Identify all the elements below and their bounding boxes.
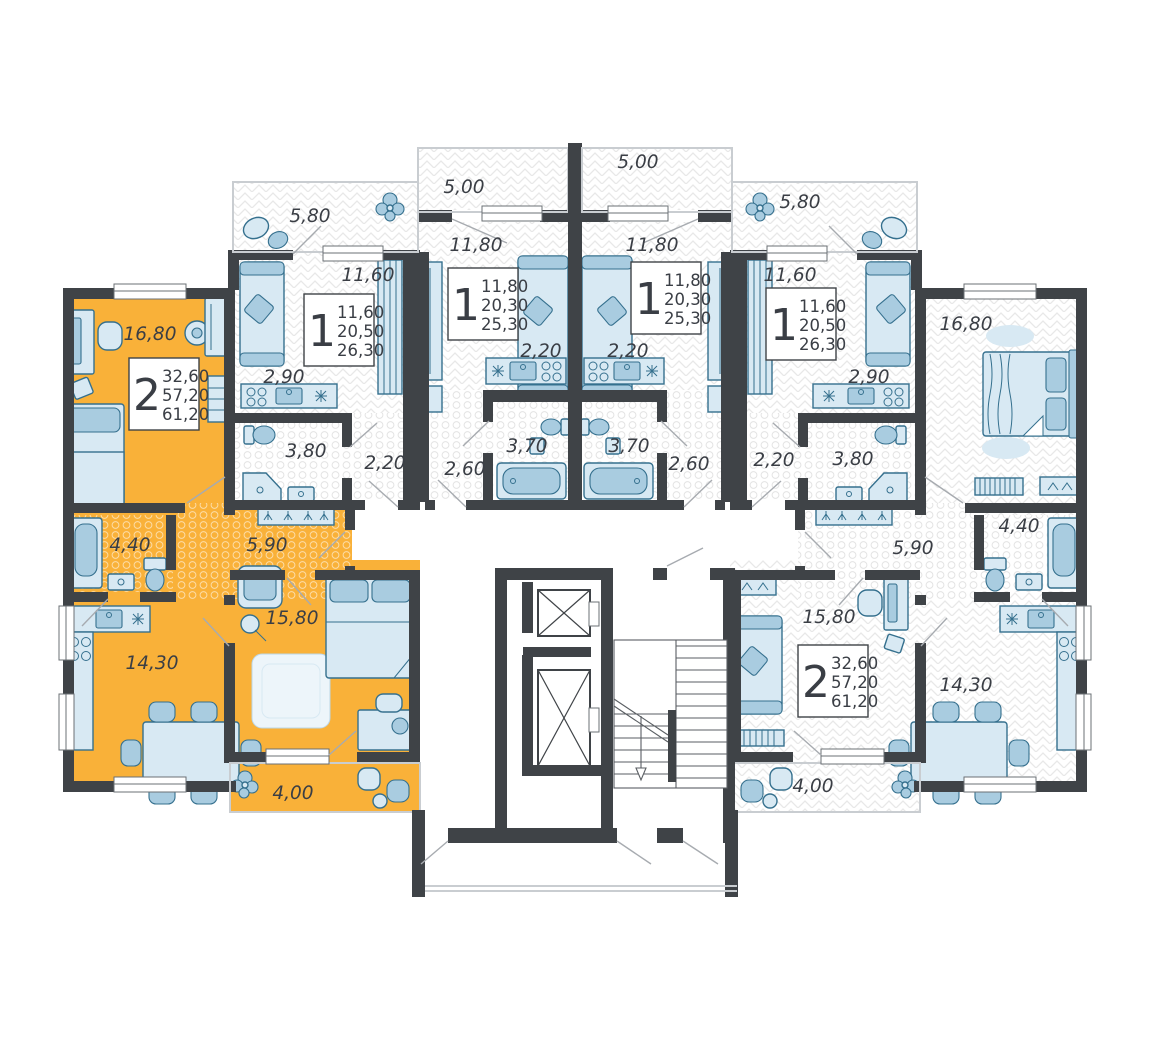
chair xyxy=(376,694,402,712)
rug xyxy=(986,325,1034,347)
monitor xyxy=(888,584,897,622)
room-area-label: 4,40 xyxy=(998,516,1039,537)
unit-area-main: 20,50 xyxy=(799,316,846,335)
room-area-label: 3,80 xyxy=(832,449,873,470)
room-area-label: 3,70 xyxy=(608,436,649,457)
room-area-label: 2,90 xyxy=(848,367,889,388)
stove-symbol xyxy=(132,613,144,625)
unit-area-living: 11,80 xyxy=(481,277,528,296)
stove-symbol xyxy=(492,365,504,377)
bookshelf xyxy=(738,730,784,746)
balcony-chair xyxy=(387,780,409,802)
rug xyxy=(982,437,1030,459)
bathtub-inner xyxy=(503,468,560,494)
room-area-label: 5,90 xyxy=(892,538,933,559)
elevator-shaft-2 xyxy=(538,670,599,766)
room-area-label: 2,90 xyxy=(263,367,304,388)
room-area-label: 15,80 xyxy=(803,607,856,628)
room-area-label: 2,60 xyxy=(668,454,709,475)
unit-area-living: 11,60 xyxy=(799,297,846,316)
unit-area-main: 57,20 xyxy=(831,673,878,692)
round-table-top xyxy=(192,328,202,338)
toilet-tank xyxy=(144,558,166,570)
unit-rooms-count: 2 xyxy=(802,657,830,708)
room-area-label: 2,20 xyxy=(607,341,648,362)
dining-chair xyxy=(121,740,141,766)
unit-area-living: 32,60 xyxy=(831,654,878,673)
room-area-label: 3,70 xyxy=(506,436,547,457)
pillow xyxy=(68,408,120,432)
dining-chair xyxy=(191,702,217,722)
unit-area-main: 20,30 xyxy=(664,290,711,309)
chair xyxy=(98,322,122,350)
room-area-label: 5,00 xyxy=(617,152,658,173)
rug xyxy=(252,654,330,728)
unit-card-2-right[interactable]: 2 32,60 57,20 61,20 xyxy=(798,645,878,717)
unit-rooms-count: 1 xyxy=(635,274,663,325)
room-area-label: 16,80 xyxy=(124,324,177,345)
room-area-label: 14,30 xyxy=(126,653,179,674)
unit-card-2-left-highlighted[interactable]: 2 32,60 57,20 61,20 xyxy=(129,358,209,430)
pillow xyxy=(1046,358,1066,392)
bathtub-inner xyxy=(75,524,97,576)
balcony-table xyxy=(373,794,387,808)
pillow xyxy=(330,580,368,602)
floor-plan: 5,80 5,00 5,00 5,80 11,60 11,80 11,80 11… xyxy=(0,0,1150,1040)
sofa-armrest xyxy=(734,701,782,714)
staircase xyxy=(614,640,727,788)
stove-symbol xyxy=(315,390,327,402)
unit-rooms-count: 1 xyxy=(770,300,798,351)
chair xyxy=(858,590,882,616)
sink xyxy=(288,487,314,501)
unit-area-living: 11,80 xyxy=(664,271,711,290)
balcony-chair xyxy=(358,768,380,790)
room-area-label: 5,90 xyxy=(246,535,287,556)
room-area-label: 11,60 xyxy=(342,265,395,286)
room-area-label: 14,30 xyxy=(940,675,993,696)
unit-rooms-count: 1 xyxy=(308,306,336,357)
desk-lamp xyxy=(392,718,408,734)
toilet-bowl xyxy=(253,426,275,444)
unit-area-total: 26,30 xyxy=(799,335,846,354)
unit-rooms-count: 2 xyxy=(133,370,161,421)
hanger-rack xyxy=(1040,477,1078,495)
elevator-shaft-1 xyxy=(538,590,599,636)
unit-area-main: 20,50 xyxy=(337,322,384,341)
elevator-door xyxy=(589,602,599,626)
room-area-label: 2,20 xyxy=(753,450,794,471)
unit-area-main: 20,30 xyxy=(481,296,528,315)
unit-card-1-mid-right[interactable]: 1 11,80 20,30 25,30 xyxy=(631,262,711,334)
room-area-label: 5,80 xyxy=(779,192,820,213)
toilet-bowl xyxy=(541,419,561,435)
room-area-label: 15,80 xyxy=(266,608,319,629)
toilet-tank xyxy=(561,419,569,435)
pillow xyxy=(1046,398,1066,430)
room-area-label: 2,20 xyxy=(364,453,405,474)
room-area-label: 4,00 xyxy=(792,776,833,797)
unit-card-1-right[interactable]: 1 11,60 20,50 26,30 xyxy=(766,288,846,360)
sink xyxy=(108,574,134,590)
room-area-label: 5,00 xyxy=(443,177,484,198)
elevator-door xyxy=(589,708,599,732)
room-area-label: 2,20 xyxy=(520,341,561,362)
unit-area-total: 25,30 xyxy=(481,315,528,334)
room-area-label: 11,80 xyxy=(450,235,503,256)
sofa-armrest xyxy=(734,616,782,629)
room-area-label: 11,80 xyxy=(626,235,679,256)
unit-card-1-left[interactable]: 1 11,60 20,50 26,30 xyxy=(304,294,384,366)
unit-area-main: 57,20 xyxy=(162,386,209,405)
unit-area-total: 25,30 xyxy=(664,309,711,328)
toilet-bowl xyxy=(146,569,164,591)
unit-card-1-mid-left[interactable]: 1 11,80 20,30 25,30 xyxy=(448,268,528,340)
unit-area-total: 61,20 xyxy=(162,405,209,424)
room-area-label: 4,00 xyxy=(272,783,313,804)
unit-area-total: 61,20 xyxy=(831,692,878,711)
unit-area-total: 26,30 xyxy=(337,341,384,360)
kitchen-sink xyxy=(276,388,302,404)
unit-area-living: 11,60 xyxy=(337,303,384,322)
room-area-label: 2,60 xyxy=(444,459,485,480)
dining-chair xyxy=(149,702,175,722)
stair-rail xyxy=(668,710,676,782)
room-area-label: 3,80 xyxy=(285,441,326,462)
room-area-label: 16,80 xyxy=(940,314,993,335)
room-area-label: 5,80 xyxy=(289,206,330,227)
unit-area-living: 32,60 xyxy=(162,367,209,386)
unit-rooms-count: 1 xyxy=(452,280,480,331)
floor-plan-page: 5,80 5,00 5,00 5,80 11,60 11,80 11,80 11… xyxy=(0,0,1150,1040)
floor-lamp xyxy=(241,615,259,633)
room-area-label: 11,60 xyxy=(764,265,817,286)
room-area-label: 4,40 xyxy=(109,535,150,556)
bookshelf xyxy=(975,478,1023,495)
pillow xyxy=(372,580,410,602)
